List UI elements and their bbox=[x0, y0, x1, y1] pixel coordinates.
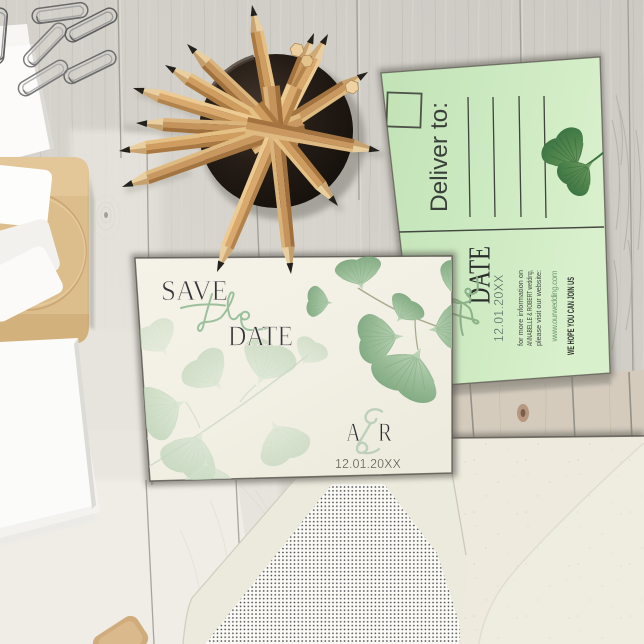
svg-text:WE HOPE YOU CAN JOIN US: WE HOPE YOU CAN JOIN US bbox=[566, 277, 576, 355]
svg-text:please visit our website:: please visit our website: bbox=[534, 270, 543, 346]
svg-text:SAVE: SAVE bbox=[161, 275, 228, 307]
svg-text:12.01.20XX: 12.01.20XX bbox=[492, 273, 506, 342]
svg-text:R: R bbox=[378, 418, 393, 447]
svg-text:DATE: DATE bbox=[228, 321, 293, 353]
svg-text:for more information on: for more information on bbox=[516, 270, 525, 346]
svg-text:12.01.20XX: 12.01.20XX bbox=[335, 457, 402, 471]
svg-text:www.ourwedding.com: www.ourwedding.com bbox=[550, 270, 559, 342]
svg-text:ANNABELLE & ROBERT wedding,: ANNABELLE & ROBERT wedding, bbox=[525, 270, 534, 346]
svg-text:Deliver to:: Deliver to: bbox=[426, 102, 453, 212]
